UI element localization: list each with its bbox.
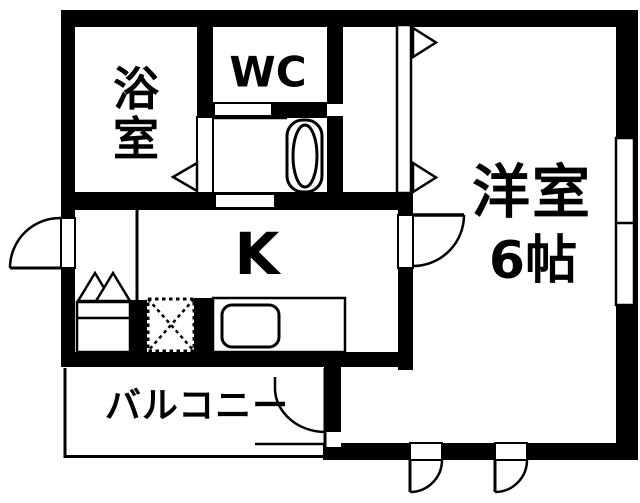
wall-wc-corridor-upper: [327, 25, 343, 103]
wall-balcony-right: [324, 352, 341, 432]
wc-side-opening: [327, 104, 343, 116]
floorplan-canvas: 浴 室 WC K 洋室 6帖 バルコニー: [0, 0, 640, 503]
window-opening-2: [495, 443, 527, 460]
outer-wall-bottom-right: [527, 443, 638, 460]
counter-block-mid: [194, 298, 213, 352]
wall-kitchen-bottom: [61, 352, 410, 367]
bathroom-label-char2: 室: [113, 112, 159, 166]
wall-wc-corridor-lower: [327, 117, 343, 193]
wc-label: WC: [229, 48, 306, 97]
toilet-entry-slot: [215, 194, 275, 208]
outer-wall-left-lower: [61, 268, 75, 353]
bathroom-label-char1: 浴: [113, 62, 160, 116]
wc-sliding-door-slot: [214, 103, 272, 116]
kitchen-sink-icon: [222, 305, 279, 347]
outer-wall-top: [61, 10, 638, 27]
right-wall-window: [616, 138, 634, 305]
western-room-label: 洋室: [472, 158, 592, 226]
wall-kitchen-west-upper: [398, 193, 413, 215]
balcony-door-opening: [324, 432, 341, 447]
kitchen-label: K: [235, 220, 282, 288]
sliding-door-panel: [397, 25, 411, 193]
window-opening-1: [410, 443, 442, 460]
counter-block-left: [130, 300, 147, 352]
floorplan-drawing: 浴 室 WC K 洋室 6帖 バルコニー: [0, 0, 640, 503]
western-room-door-opening: [398, 215, 413, 268]
toilet-bowl-icon: [293, 125, 317, 187]
balcony-label: バルコニー: [105, 386, 289, 427]
bathroom-door-slot: [197, 117, 213, 193]
entrance-opening: [61, 218, 75, 268]
wall-bath-wc: [197, 25, 213, 117]
outer-wall-bottom-mid: [442, 443, 495, 460]
western-room-size-label: 6帖: [489, 231, 577, 291]
shoe-cabinet: [77, 302, 130, 352]
outer-wall-left-upper: [61, 10, 75, 218]
